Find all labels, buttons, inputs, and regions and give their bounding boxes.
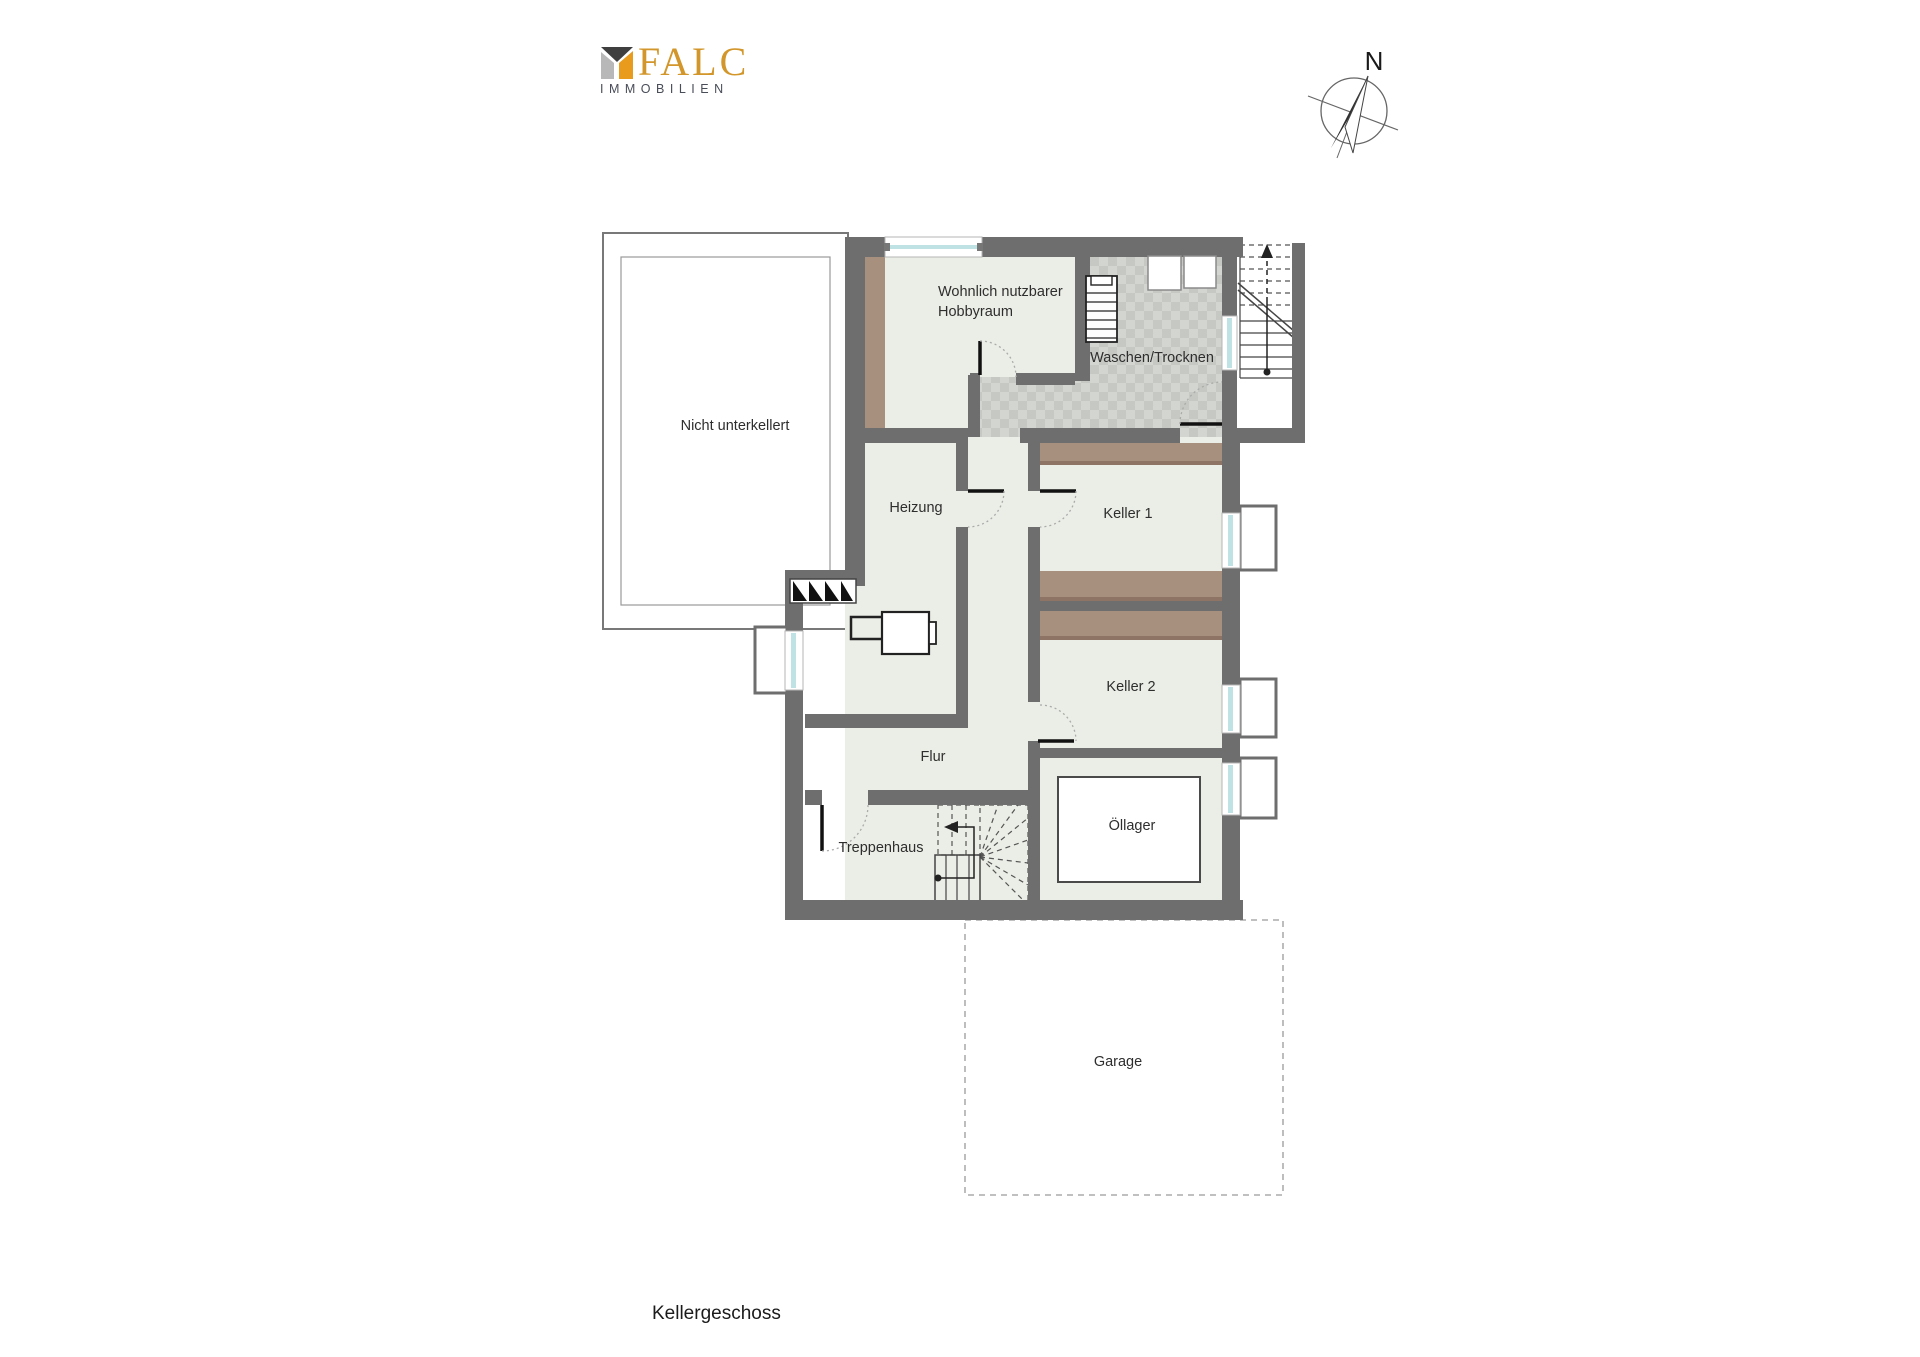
room-label-garage: Garage	[1094, 1054, 1142, 1070]
light-shaft-icon	[790, 579, 856, 603]
room-label-nicht-unterkellert: Nicht unterkellert	[681, 418, 790, 434]
floor-plan: N	[0, 0, 1920, 1357]
light-well	[1240, 679, 1276, 737]
light-well	[755, 627, 787, 693]
light-well	[1240, 758, 1276, 818]
room-label-oellager: Öllager	[1109, 816, 1156, 834]
boiler-icon	[882, 612, 929, 654]
compass-rose-icon: N	[1308, 46, 1398, 158]
dryer-icon	[1184, 256, 1216, 288]
floorplan-page: { "branding": { "name": "FALC", "subtitl…	[0, 0, 1920, 1357]
room-label-heizung: Heizung	[889, 500, 942, 516]
compass-north-label: N	[1365, 46, 1384, 76]
washer-icon	[1148, 256, 1181, 290]
drying-rack-icon	[1086, 276, 1117, 342]
room-label-keller-1: Keller 1	[1103, 506, 1152, 522]
room-label-waschen-trocknen: Waschen/Trocknen	[1090, 350, 1214, 366]
light-well	[1240, 506, 1276, 570]
room-label-flur: Flur	[921, 749, 946, 765]
room-label-hobbyraum-line2: Hobbyraum	[938, 304, 1013, 320]
room-label-treppenhaus: Treppenhaus	[839, 840, 924, 856]
room-label-hobbyraum-line1: Wohnlich nutzbarer	[938, 284, 1063, 300]
room-label-keller-2: Keller 2	[1106, 679, 1155, 695]
